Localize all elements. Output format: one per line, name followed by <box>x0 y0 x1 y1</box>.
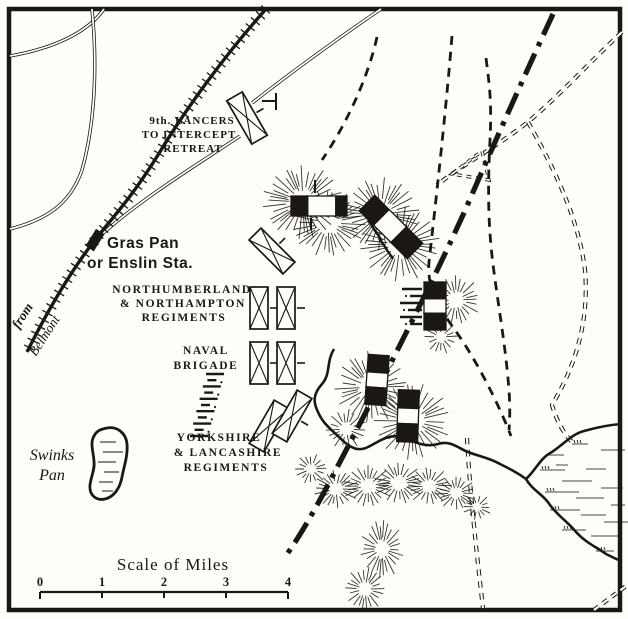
position-bar-south-1 <box>365 354 389 405</box>
firing-line-dot <box>403 309 405 311</box>
position-bar-south-2 <box>397 390 420 443</box>
label-yorkshire-line1: YORKSHIRE <box>177 432 262 444</box>
ridge-hatch-dot <box>220 381 222 383</box>
ridge-hatch-dot <box>214 406 216 408</box>
label-yorkshire-line3: REGIMENTS <box>184 462 269 474</box>
label-station-line1: Gras Pan <box>107 235 179 252</box>
scale-tick-4: 4 <box>285 575 292 589</box>
position-bar-kopje-west <box>291 196 347 216</box>
scale-tick-2: 2 <box>161 575 167 589</box>
ridge-hatch-dot <box>211 418 213 420</box>
label-northumberland-line1: NORTHUMBERLAND <box>112 284 252 296</box>
firing-line-dot <box>405 323 407 325</box>
firing-line-dot <box>405 295 407 297</box>
label-lancers-line2: TO INTERCEPT <box>142 129 237 141</box>
label-swinks-line2: Pan <box>38 467 65 484</box>
label-yorkshire-line2: & LANCASHIRE <box>174 447 282 459</box>
label-naval-line2: BRIGADE <box>174 360 239 372</box>
ridge-hatch-dot <box>217 394 219 396</box>
battle-map: 9th. LANCERS TO INTERCEPT RETREAT Gras P… <box>0 0 628 619</box>
label-lancers-line3: RETREAT <box>163 143 222 155</box>
label-station-line2: or Enslin Sta. <box>87 255 193 272</box>
label-northumberland-line2: & NORTHAMPTON <box>120 298 246 310</box>
scale-bar-title: Scale of Miles <box>117 555 229 574</box>
battle-map-page: 9th. LANCERS TO INTERCEPT RETREAT Gras P… <box>0 0 628 619</box>
scale-tick-3: 3 <box>223 575 229 589</box>
label-naval-line1: NAVAL <box>183 345 229 357</box>
position-bar-center <box>424 282 446 330</box>
label-northumberland-line3: REGIMENTS <box>142 312 227 324</box>
scale-tick-1: 1 <box>99 575 105 589</box>
scale-tick-0: 0 <box>37 575 43 589</box>
label-swinks-line1: Swinks <box>30 447 74 464</box>
label-lancers-line1: 9th. LANCERS <box>149 115 234 127</box>
